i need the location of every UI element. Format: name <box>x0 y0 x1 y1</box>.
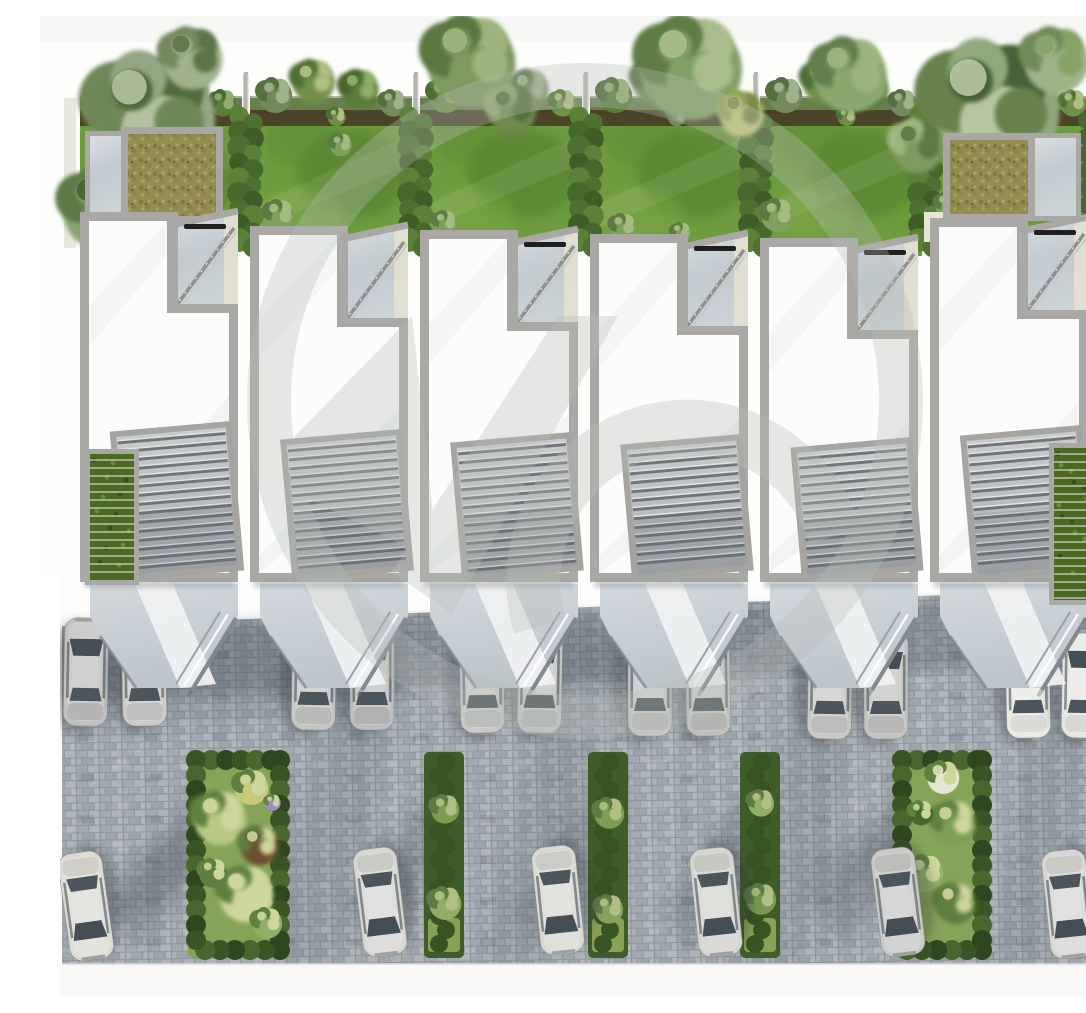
green-roof-box <box>121 127 223 223</box>
roof-vent <box>1034 230 1076 235</box>
rendering-canvas <box>40 16 1086 997</box>
aerial-site-rendering <box>40 16 1086 997</box>
left-margin <box>40 576 60 997</box>
planting-island <box>186 750 290 960</box>
hedge-strip <box>588 752 628 958</box>
green-wall <box>1049 443 1086 605</box>
green-roof-box <box>943 133 1035 221</box>
hedge-strip <box>424 752 464 958</box>
roof-terrace <box>342 224 408 326</box>
roof-vent <box>184 224 226 229</box>
roof-vent <box>524 242 566 247</box>
green-wall <box>85 449 139 585</box>
roof-vent <box>694 246 736 251</box>
